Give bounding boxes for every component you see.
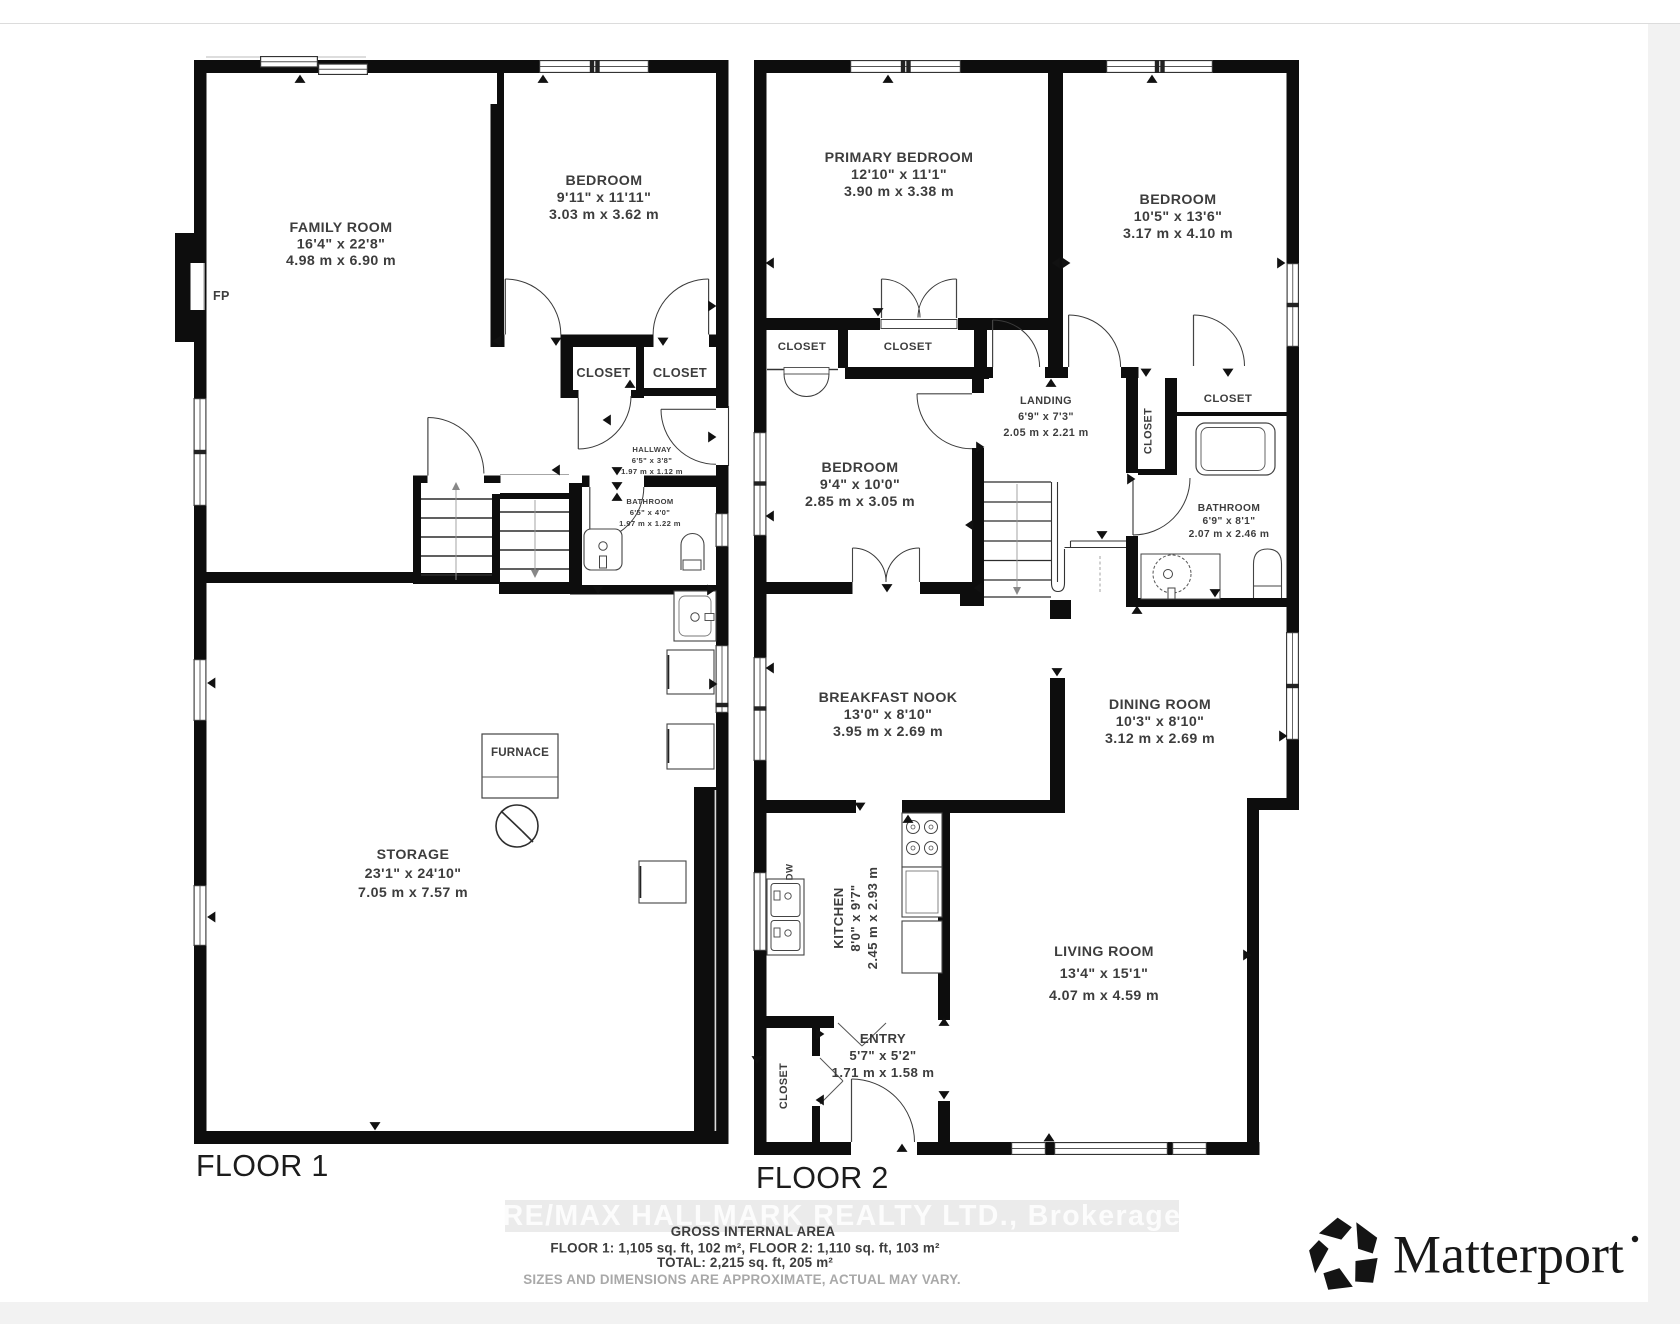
svg-text:1.97 m x 1.22 m: 1.97 m x 1.22 m [619, 519, 681, 528]
svg-text:16'4" x 22'8": 16'4" x 22'8" [297, 237, 386, 253]
svg-text:23'1" x 24'10": 23'1" x 24'10" [365, 866, 462, 882]
svg-text:CLOSET: CLOSET [778, 341, 827, 353]
svg-text:CLOSET: CLOSET [1143, 408, 1155, 454]
svg-text:LIVING ROOM: LIVING ROOM [1054, 944, 1154, 960]
svg-text:2.85 m x 3.05 m: 2.85 m x 3.05 m [805, 494, 915, 510]
svg-text:PRIMARY BEDROOM: PRIMARY BEDROOM [825, 150, 974, 166]
svg-text:FLOOR 1: FLOOR 1 [196, 1149, 329, 1183]
svg-text:CLOSET: CLOSET [778, 1063, 790, 1109]
svg-text:2.05 m x 2.21 m: 2.05 m x 2.21 m [1003, 427, 1088, 439]
svg-text:HALLWAY: HALLWAY [632, 445, 671, 454]
svg-text:BEDROOM: BEDROOM [1140, 192, 1217, 208]
svg-text:6'5" x 3'8": 6'5" x 3'8" [632, 456, 673, 465]
svg-text:BATHROOM: BATHROOM [626, 497, 673, 506]
svg-text:8'0" x 9'7": 8'0" x 9'7" [848, 884, 863, 951]
svg-text:6'5" x 4'0": 6'5" x 4'0" [630, 508, 671, 517]
svg-text:CLOSET: CLOSET [884, 341, 933, 353]
svg-text:BATHROOM: BATHROOM [1198, 503, 1260, 514]
svg-text:ENTRY: ENTRY [860, 1031, 906, 1046]
svg-text:1.71 m x 1.58 m: 1.71 m x 1.58 m [832, 1065, 935, 1080]
svg-text:FLOOR 1: 1,105 sq. ft, 102 m²,: FLOOR 1: 1,105 sq. ft, 102 m², FLOOR 2: … [550, 1241, 940, 1256]
svg-text:RE/MAX HALLMARK REALTY LTD., B: RE/MAX HALLMARK REALTY LTD., Brokerage [503, 1200, 1182, 1232]
svg-text:12'10" x 11'1": 12'10" x 11'1" [851, 167, 947, 183]
svg-text:CLOSET: CLOSET [1204, 393, 1253, 405]
svg-text:9'4" x 10'0": 9'4" x 10'0" [820, 477, 900, 493]
svg-text:DINING ROOM: DINING ROOM [1109, 697, 1211, 713]
svg-text:TOTAL: 2,215 sq. ft, 205 m²: TOTAL: 2,215 sq. ft, 205 m² [657, 1255, 833, 1270]
svg-text:BEDROOM: BEDROOM [566, 173, 643, 189]
svg-text:LANDING: LANDING [1020, 395, 1072, 407]
svg-text:FAMILY ROOM: FAMILY ROOM [290, 220, 393, 236]
svg-text:5'7" x 5'2": 5'7" x 5'2" [849, 1048, 916, 1063]
svg-text:GROSS INTERNAL AREA: GROSS INTERNAL AREA [671, 1224, 836, 1239]
svg-text:3.12 m x 2.69 m: 3.12 m x 2.69 m [1105, 731, 1215, 747]
svg-text:FURNACE: FURNACE [491, 746, 549, 759]
svg-text:6'9" x 7'3": 6'9" x 7'3" [1018, 411, 1074, 423]
svg-text:BREAKFAST NOOK: BREAKFAST NOOK [819, 690, 958, 706]
svg-text:3.90 m x 3.38 m: 3.90 m x 3.38 m [844, 184, 954, 200]
svg-text:3.03 m x 3.62 m: 3.03 m x 3.62 m [549, 207, 659, 223]
svg-text:CLOSET: CLOSET [653, 365, 707, 380]
svg-text:10'5" x 13'6": 10'5" x 13'6" [1134, 209, 1223, 225]
svg-text:Matterport: Matterport [1393, 1225, 1624, 1285]
svg-text:13'0" x 8'10": 13'0" x 8'10" [844, 707, 933, 723]
svg-text:KITCHEN: KITCHEN [831, 887, 846, 948]
svg-text:7.05 m x 7.57 m: 7.05 m x 7.57 m [358, 885, 468, 901]
svg-text:SIZES AND DIMENSIONS ARE APPRO: SIZES AND DIMENSIONS ARE APPROXIMATE, AC… [523, 1272, 961, 1287]
svg-text:13'4" x 15'1": 13'4" x 15'1" [1060, 966, 1149, 982]
svg-text:1.97 m x 1.12 m: 1.97 m x 1.12 m [621, 467, 683, 476]
svg-text:FP: FP [213, 289, 230, 303]
svg-text:3.17 m x 4.10 m: 3.17 m x 4.10 m [1123, 226, 1233, 242]
svg-text:2.07 m x 2.46 m: 2.07 m x 2.46 m [1189, 529, 1270, 540]
svg-text:10'3" x 8'10": 10'3" x 8'10" [1116, 714, 1205, 730]
svg-text:2.45 m x 2.93 m: 2.45 m x 2.93 m [865, 867, 880, 970]
svg-text:CLOSET: CLOSET [576, 365, 630, 380]
svg-text:6'9" x 8'1": 6'9" x 8'1" [1203, 516, 1256, 527]
svg-text:9'11" x 11'11": 9'11" x 11'11" [557, 190, 651, 206]
svg-text:DW: DW [785, 864, 796, 881]
svg-text:4.98 m x 6.90 m: 4.98 m x 6.90 m [286, 253, 396, 269]
svg-text:4.07 m x 4.59 m: 4.07 m x 4.59 m [1049, 988, 1159, 1004]
svg-text:3.95 m x 2.69 m: 3.95 m x 2.69 m [833, 724, 943, 740]
svg-text:FLOOR 2: FLOOR 2 [756, 1161, 889, 1195]
svg-text:BEDROOM: BEDROOM [822, 460, 899, 476]
svg-text:STORAGE: STORAGE [377, 847, 450, 863]
